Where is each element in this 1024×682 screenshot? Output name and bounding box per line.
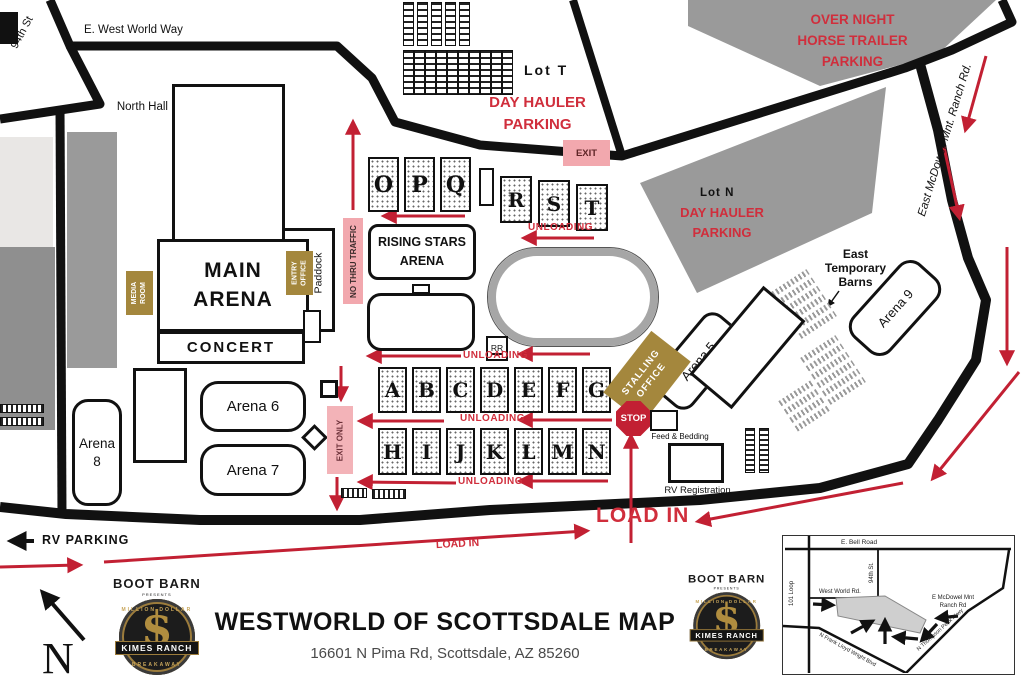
inset-bell-road-label: E. Bell Road: [841, 539, 877, 546]
map-title: WESTWORLD OF SCOTTSDALE MAP: [180, 608, 710, 637]
lot-t-parking-rows-1: [403, 2, 470, 46]
barn-b: B: [418, 378, 435, 402]
barn-p: P: [411, 172, 428, 198]
barn-k: K: [486, 440, 503, 464]
feed-bedding-building: [650, 410, 678, 431]
rv-registration-building: [668, 443, 724, 483]
exit-only-label: EXIT ONLY: [336, 419, 345, 461]
arena-6: Arena 6: [200, 381, 306, 432]
load-in-label: LOAD IN: [596, 504, 689, 528]
west-building-dark: [0, 247, 55, 430]
arena-7-label: Arena 7: [227, 462, 280, 479]
stall-strip: [0, 404, 44, 413]
lot-t-label: Lot T: [524, 62, 568, 78]
east-barns-pointer-arrow: [829, 291, 839, 305]
stop-sign: STOP: [616, 401, 651, 436]
north-hall-label: North Hall: [100, 101, 168, 113]
presents-text: PRESENTS: [142, 592, 172, 597]
rv-parking-label: RV PARKING: [42, 533, 129, 547]
exit-sign: EXIT: [563, 140, 610, 166]
stall-strip: [372, 489, 406, 499]
unloading-label: UNLOADING: [458, 476, 523, 487]
east-temp-barns-label: East Temporary Barns: [808, 248, 903, 289]
arrow-loadin-feeder-left1: [0, 565, 78, 567]
boot-barn-logo-right: BOOT BARN PRESENTS MILLION DOLLAR $ KIME…: [688, 572, 765, 659]
boot-barn-wordmark: BOOT BARN: [113, 576, 201, 591]
barn-l: L: [521, 440, 535, 464]
breakaway-text: BREAKAWAY: [693, 648, 760, 653]
entry-office-label: ENTRY OFFICE: [290, 260, 308, 286]
stall-strip: [745, 428, 755, 473]
rising-stars-label: RISING STARS ARENA: [378, 233, 466, 271]
kimes-ranch-text: KIMES RANCH: [690, 629, 764, 641]
lot-n-label: Lot N: [700, 187, 734, 199]
barn-t: T: [585, 196, 600, 220]
paddock-area: Paddock: [308, 247, 328, 299]
feed-bedding-label: Feed & Bedding: [640, 432, 720, 441]
breakaway-text: BREAKAWAY: [119, 662, 195, 668]
arrow-southeast-in: [934, 372, 1019, 477]
barn-s: S: [547, 192, 561, 216]
west-world-way-label: E. West World Way: [84, 24, 183, 36]
arena-6-label: Arena 6: [227, 398, 280, 415]
rising-stars-arena: RISING STARS ARENA: [368, 224, 476, 280]
unloading-label: UNLOADING: [463, 350, 528, 361]
unloading-label: UNLOADING: [460, 413, 525, 424]
concert-building: CONCERT: [157, 331, 305, 364]
arena-8-label: Arena 8: [79, 435, 115, 470]
barn-m: M: [551, 440, 573, 464]
media-room: MEDIA ROOM: [126, 271, 153, 315]
barn-c: C: [453, 378, 469, 402]
warmup-annex: [412, 284, 430, 294]
racetrack-oval: [492, 252, 654, 342]
lot-t-parking-rows-2: [403, 50, 513, 95]
stall-strip: [759, 428, 769, 473]
arrow-loadin-feeder-left2: [104, 531, 585, 562]
exit-label: EXIT: [576, 148, 597, 159]
unloading-label: UNLOADING: [528, 222, 593, 233]
barn-d: D: [486, 378, 503, 402]
boot-barn-wordmark: BOOT BARN: [688, 572, 765, 585]
load-in-small-label: LOAD IN: [436, 537, 480, 551]
stall-strip: [0, 417, 44, 426]
inset-mcdowell-label: E McDowel Mnt Ranch Rd: [923, 595, 983, 611]
barns-a-g: A B C D E F G: [378, 367, 611, 413]
inset-west-world-rd-label: West World Rd.: [819, 589, 861, 595]
barn-i: I: [422, 440, 431, 464]
barn-o: O: [374, 172, 393, 198]
compass-n: N: [42, 633, 74, 682]
rv-registration-label: RV Registration: [650, 485, 745, 496]
inset-locator-map: E. Bell Road 101 Loop 94th St. West Worl…: [782, 535, 1015, 675]
inset-venue-area: [836, 596, 926, 633]
kimes-ranch-badge: MILLION DOLLAR $ KIMES RANCH BREAKAWAY: [693, 592, 760, 659]
stop-label: STOP: [621, 413, 647, 424]
barn-g: G: [588, 378, 605, 402]
arena-8: Arena 8: [72, 399, 122, 506]
barn-n: N: [587, 440, 605, 464]
presents-text: PRESENTS: [714, 586, 740, 590]
concert-label: CONCERT: [187, 339, 275, 356]
arrow-row3-left: [362, 482, 456, 483]
barn-q: Q: [446, 172, 465, 198]
paddock-label: Paddock: [312, 253, 324, 294]
exit-only-sign: EXIT ONLY: [327, 406, 353, 474]
west-building-light: [0, 137, 53, 247]
arena-7: Arena 7: [200, 444, 306, 496]
no-thru-traffic-sign: NO THRU TRAFFIC: [343, 218, 363, 304]
media-room-label: MEDIA ROOM: [130, 282, 148, 305]
westworld-map: North Hall MAIN ARENA CONCERT MEDIA ROOM…: [0, 0, 1024, 682]
inset-101-loop-label: 101 Loop: [789, 581, 795, 606]
day-hauler-t-label: DAY HAULER PARKING: [470, 92, 605, 136]
main-arena-label: MAIN ARENA: [193, 257, 273, 314]
overnight-parking-label: OVER NIGHT HORSE TRAILER PARKING: [790, 10, 915, 73]
day-hauler-n-label: DAY HAULER PARKING: [662, 203, 782, 242]
barn-e: E: [521, 378, 536, 402]
arena-annex: [303, 310, 321, 343]
barn-a: A: [385, 378, 401, 402]
road-94th-branch: [0, 46, 100, 119]
barns-h-n: H I J K L M N: [378, 428, 611, 475]
inset-94th-st-label: 94th St.: [869, 562, 875, 583]
small-square-building: [320, 380, 338, 398]
barn-f: F: [555, 378, 569, 402]
unlabeled-building: [133, 368, 187, 463]
barns-opq: O P Q: [368, 157, 471, 212]
road-west-vertical: [60, 108, 62, 515]
map-address: 16601 N Pima Rd, Scottsdale, AZ 85260: [180, 645, 710, 662]
barn-r: R: [508, 188, 525, 212]
barn-j: J: [456, 440, 465, 464]
north-hall-building: [172, 84, 285, 244]
small-empty-stall: [479, 168, 494, 206]
west-building-mid: [67, 132, 117, 368]
no-thru-traffic-label: NO THRU TRAFFIC: [349, 225, 358, 298]
barn-h: H: [383, 440, 402, 464]
arena-9-label: Arena 9: [874, 286, 916, 330]
warmup-arena: [367, 293, 475, 351]
stall-strip: [341, 488, 367, 498]
